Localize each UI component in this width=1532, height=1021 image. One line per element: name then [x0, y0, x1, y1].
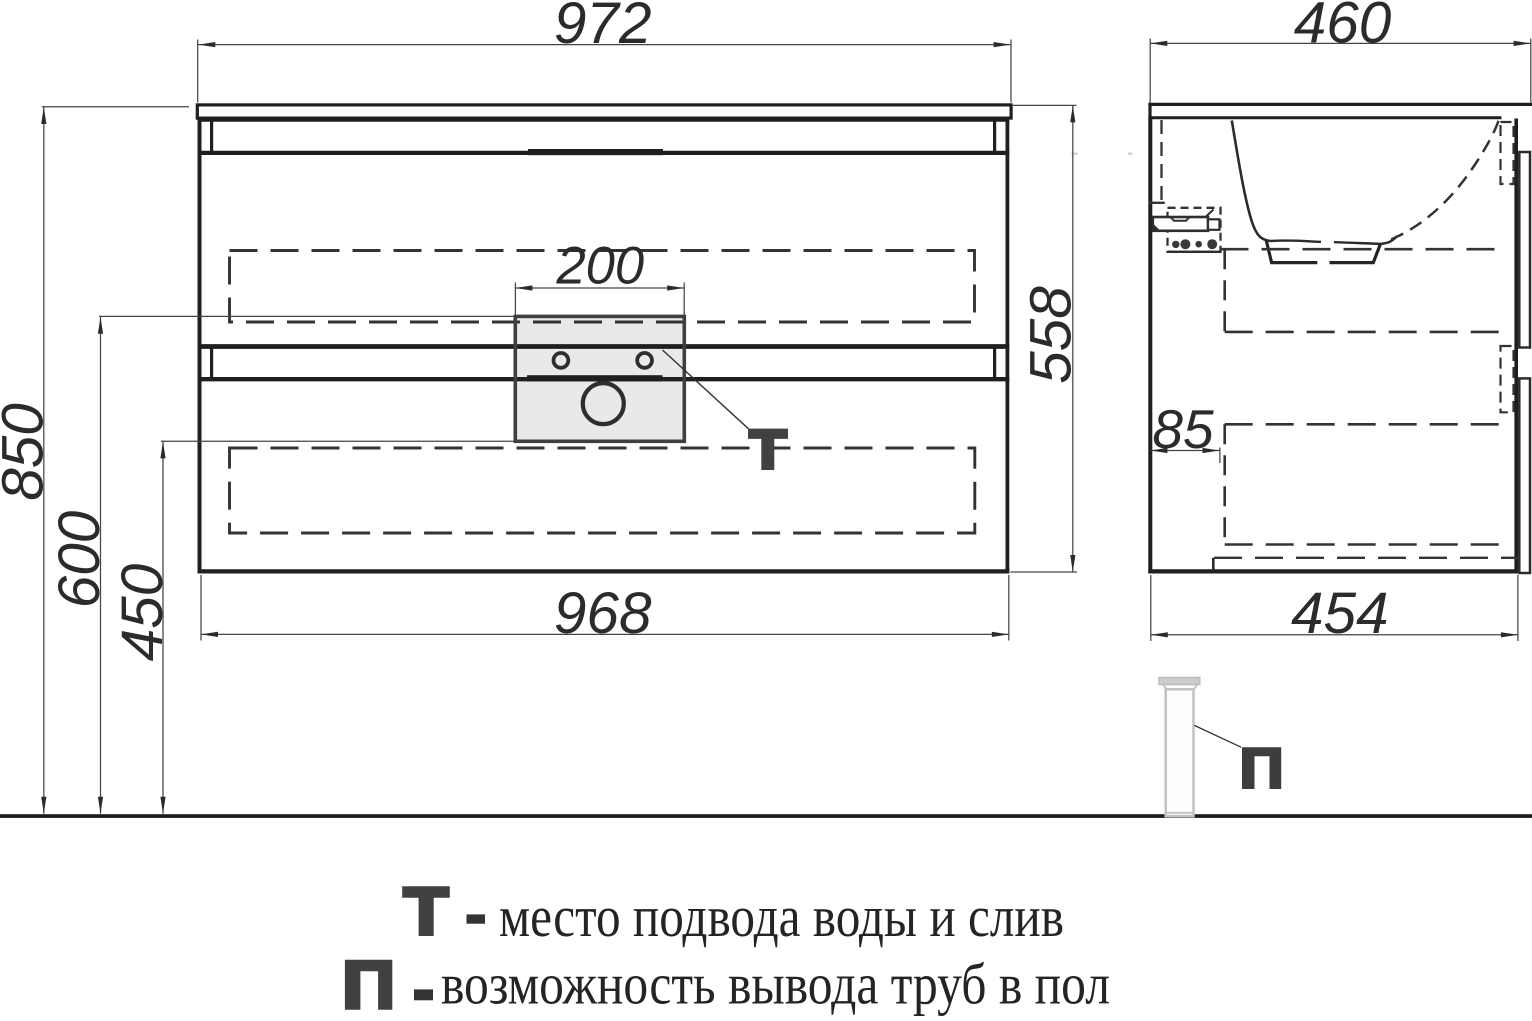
svg-text:450: 450 [110, 563, 175, 661]
svg-text:850: 850 [0, 403, 56, 501]
svg-text:возможность вывода труб в пол: возможность вывода труб в пол [441, 951, 1110, 1016]
svg-text:85: 85 [1152, 398, 1214, 460]
svg-text:968: 968 [554, 581, 652, 646]
svg-text:558: 558 [1019, 286, 1084, 384]
svg-text:200: 200 [555, 237, 644, 296]
svg-text:454: 454 [1291, 581, 1389, 646]
svg-text:600: 600 [47, 510, 112, 608]
svg-text:460: 460 [1294, 0, 1392, 55]
svg-text:972: 972 [554, 0, 652, 56]
svg-text:место подвода воды и слив: место подвода воды и слив [499, 884, 1064, 949]
